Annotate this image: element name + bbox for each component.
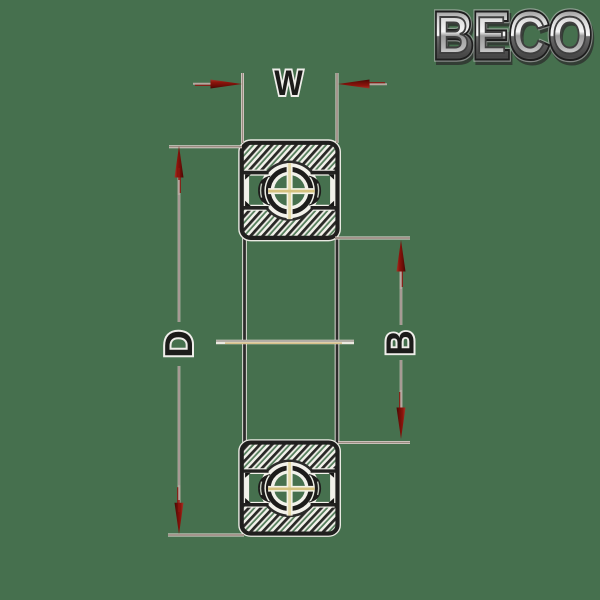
svg-text:D: D <box>158 330 201 358</box>
svg-text:B: B <box>378 330 422 355</box>
svg-text:C: C <box>513 7 544 65</box>
svg-text:O: O <box>553 7 586 65</box>
svg-text:E: E <box>476 7 504 65</box>
svg-text:B: B <box>437 7 468 65</box>
svg-text:W: W <box>274 63 303 103</box>
